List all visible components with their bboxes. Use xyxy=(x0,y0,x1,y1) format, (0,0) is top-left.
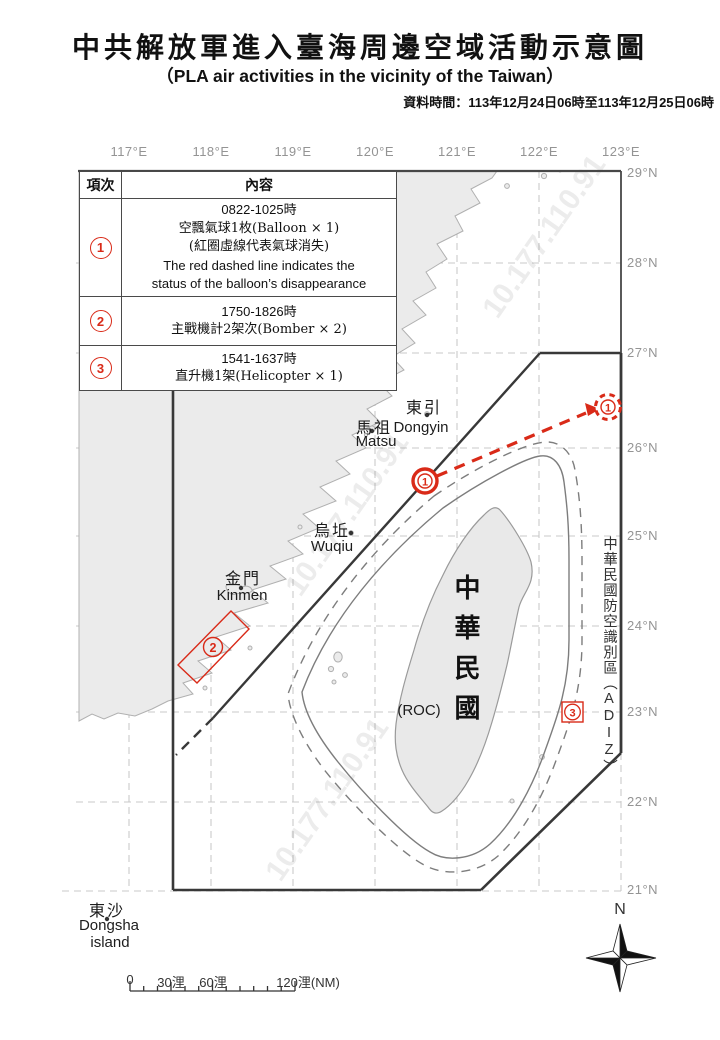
helicopter-activity-area: 3 xyxy=(562,702,583,722)
place-label-dongsha-en: Dongsha xyxy=(69,917,149,934)
svg-text:2: 2 xyxy=(210,641,217,655)
pla-activity-map-page: 中共解放軍進入臺海周邊空域活動示意圖 （PLA air activities i… xyxy=(0,0,720,1040)
col-header-content: 內容 xyxy=(122,172,396,198)
activity-note-en: The red dashed line indicates the xyxy=(163,257,355,276)
activity-desc: 主戰機計2架次(Bomber × 2) xyxy=(171,321,347,340)
table-header-row: 項次 內容 xyxy=(80,172,396,198)
compass-north-label: N xyxy=(606,901,634,919)
item-1-badge: 1 xyxy=(90,237,112,259)
activity-desc: 直升機1架(Helicopter × 1) xyxy=(175,368,343,387)
activity-time: 1541-1637時 xyxy=(221,350,296,369)
compass-rose-icon xyxy=(586,924,656,992)
item-3-badge: 3 xyxy=(90,357,112,379)
place-label-dongsha-island: island xyxy=(70,934,150,951)
activity-time: 0822-1025時 xyxy=(221,201,296,220)
svg-text:3: 3 xyxy=(569,708,575,720)
activity-note-en: status of the balloon’s disappearance xyxy=(152,275,366,294)
marker-1-disappearance-icon: 1 xyxy=(596,395,621,420)
place-label-kinmen-en: Kinmen xyxy=(202,587,282,604)
activity-note-zh: (紅圈虛線代表氣球消失) xyxy=(189,238,329,257)
activity-time: 1750-1826時 xyxy=(221,303,296,322)
place-label-wuqiu-en: Wuqiu xyxy=(292,538,372,555)
scale-label-0: 0 xyxy=(120,972,140,987)
scale-label-60: 60浬 xyxy=(188,972,238,991)
col-header-item: 項次 xyxy=(80,172,122,198)
scale-label-120: 120浬(NM) xyxy=(268,972,348,991)
activity-table: 項次 內容 1 0822-1025時 空飄氣球1枚(Balloon × 1) (… xyxy=(79,171,397,391)
table-row: 1 0822-1025時 空飄氣球1枚(Balloon × 1) (紅圈虛線代表… xyxy=(80,198,396,296)
table-row: 3 1541-1637時 直升機1架(Helicopter × 1) xyxy=(80,345,396,390)
svg-text:1: 1 xyxy=(605,403,611,415)
place-label-matsu-en: Matsu xyxy=(336,433,416,450)
roc-vertical-label: 中華民國 xyxy=(447,574,484,734)
table-row: 2 1750-1826時 主戰機計2架次(Bomber × 2) xyxy=(80,296,396,345)
adiz-vertical-label: 中華民國防空識別區（ADIZ） xyxy=(599,536,620,775)
svg-text:1: 1 xyxy=(422,477,428,489)
activity-desc: 空飄氣球1枚(Balloon × 1) xyxy=(179,220,340,239)
marker-1-start-icon: 1 xyxy=(413,469,437,493)
item-2-badge: 2 xyxy=(90,310,112,332)
place-label-kinmen-zh: 金門 xyxy=(203,565,283,589)
